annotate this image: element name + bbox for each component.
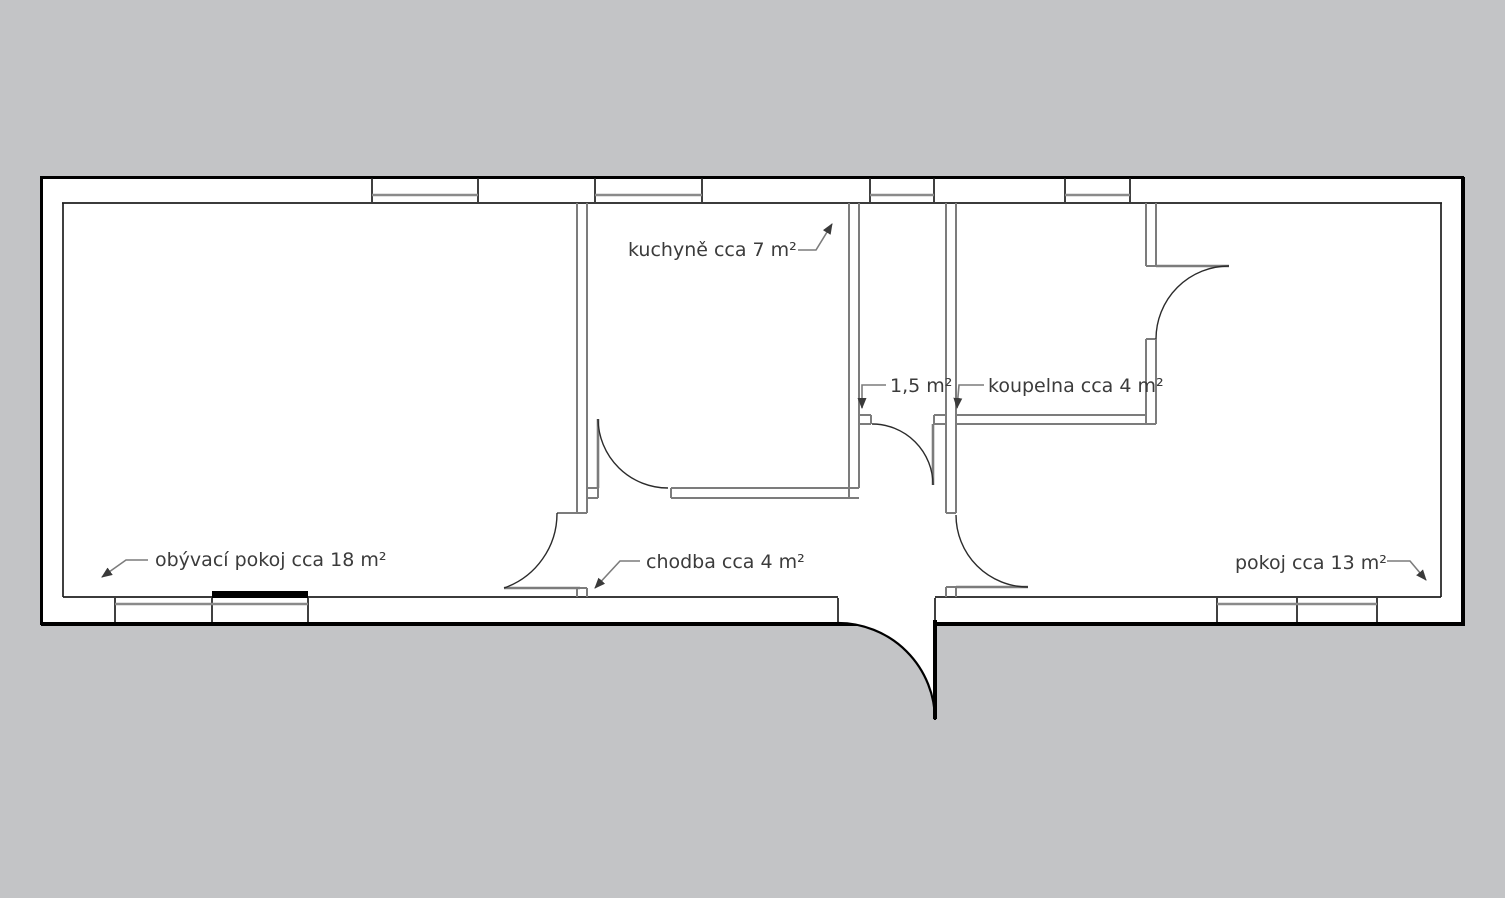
floor-plan-canvas: obývací pokoj cca 18 m² kuchyně cca 7 m²… — [0, 0, 1505, 898]
label-obyvaci-pokoj: obývací pokoj cca 18 m² — [155, 549, 386, 571]
label-kuchyne: kuchyně cca 7 m² — [628, 239, 797, 261]
label-pokoj: pokoj cca 13 m² — [1235, 552, 1387, 574]
balcony-door-threshold-bar — [212, 591, 308, 598]
label-chodba: chodba cca 4 m² — [646, 551, 805, 573]
label-koupelna: koupelna cca 4 m² — [988, 375, 1164, 397]
label-wc: 1,5 m² — [890, 375, 952, 397]
floor-plan-page: obývací pokoj cca 18 m² kuchyně cca 7 m²… — [0, 0, 1505, 898]
